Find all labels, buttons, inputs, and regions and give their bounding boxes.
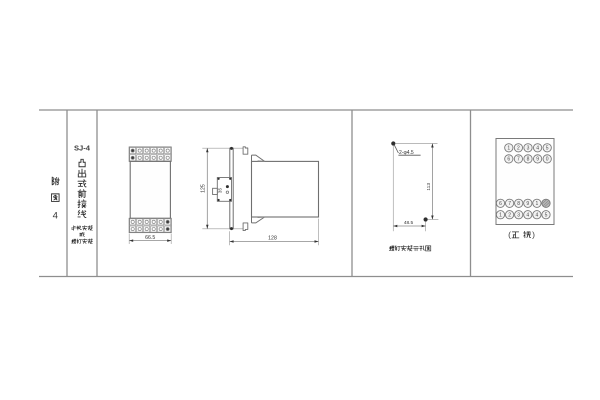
svg-text:1: 1 bbox=[507, 146, 510, 152]
svg-text:6: 6 bbox=[499, 201, 502, 207]
svg-text:0: 0 bbox=[546, 157, 549, 163]
svg-text:7: 7 bbox=[508, 201, 511, 207]
svg-text:48.5: 48.5 bbox=[404, 220, 414, 226]
svg-text:(: ( bbox=[508, 230, 511, 240]
svg-text:125: 125 bbox=[201, 184, 207, 193]
svg-text:SJ-4: SJ-4 bbox=[74, 144, 91, 153]
svg-text:9: 9 bbox=[526, 201, 529, 207]
svg-text:4: 4 bbox=[536, 213, 539, 219]
svg-text:128: 128 bbox=[268, 235, 277, 241]
svg-text:8: 8 bbox=[527, 157, 530, 163]
svg-text:3: 3 bbox=[527, 146, 530, 152]
svg-text:4: 4 bbox=[536, 146, 539, 152]
svg-text:7: 7 bbox=[517, 157, 520, 163]
svg-text:3: 3 bbox=[517, 213, 520, 219]
svg-text:4: 4 bbox=[526, 213, 529, 219]
svg-text:66.5: 66.5 bbox=[145, 235, 155, 241]
svg-text:8: 8 bbox=[517, 201, 520, 207]
svg-text:9: 9 bbox=[536, 157, 539, 163]
svg-text:6: 6 bbox=[507, 157, 510, 163]
svg-text:2-φ4.5: 2-φ4.5 bbox=[399, 150, 414, 156]
svg-text:4: 4 bbox=[53, 211, 58, 222]
svg-text:1: 1 bbox=[536, 201, 539, 207]
svg-text:35: 35 bbox=[218, 188, 223, 194]
svg-text:2: 2 bbox=[508, 213, 511, 219]
svg-text:113: 113 bbox=[426, 183, 432, 191]
svg-text:2: 2 bbox=[517, 146, 520, 152]
svg-text:1: 1 bbox=[499, 213, 502, 219]
svg-text:): ) bbox=[532, 230, 535, 240]
svg-text:5: 5 bbox=[546, 146, 549, 152]
svg-text:5: 5 bbox=[545, 213, 548, 219]
